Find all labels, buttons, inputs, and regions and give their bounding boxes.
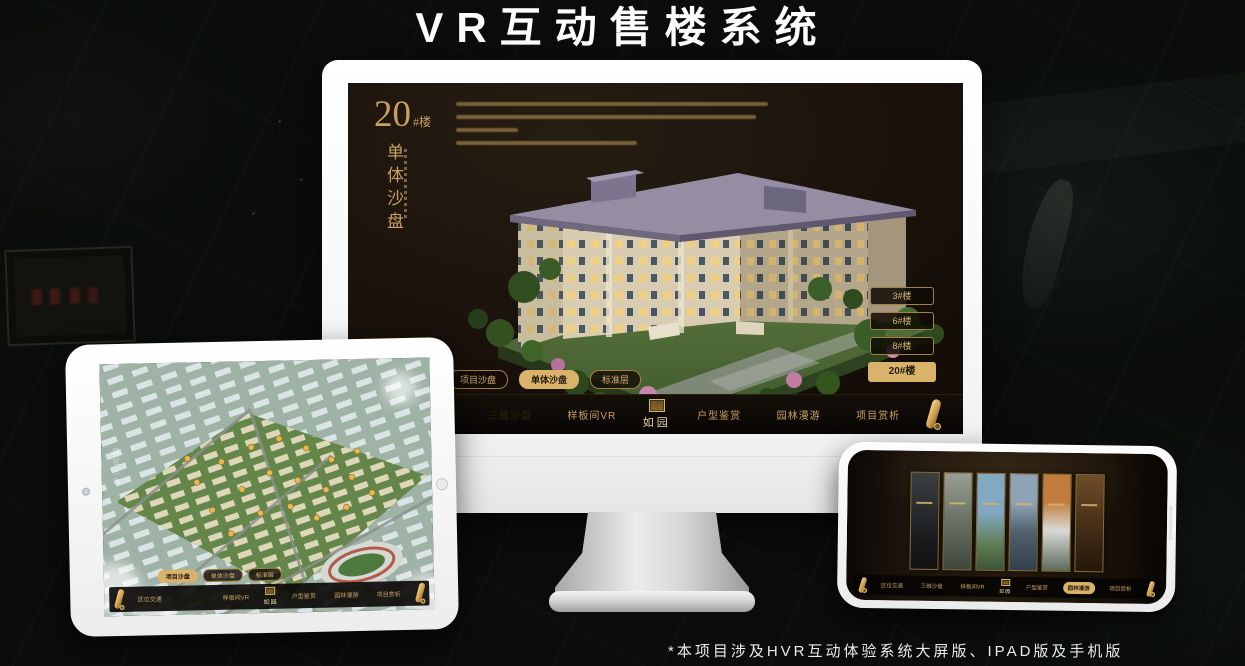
seal-icon [1001,579,1010,586]
seal-icon [265,587,275,595]
tablet-nav-item-showroom-vr[interactable]: 样板间VR [218,589,253,605]
scroll-menu-icon[interactable] [114,588,123,610]
vertical-section-title: 单体沙盘 [381,143,406,235]
gold-speck [300,178,303,181]
tablet-nav-item-garden-roam[interactable]: 园林漫游 [330,587,362,603]
phone-nav-item-location[interactable]: 区位交通 [878,579,906,591]
panorama-card[interactable] [1074,474,1104,572]
vertical-title-english-caption [404,149,407,219]
panorama-card[interactable] [909,472,939,570]
phone-bottom-nav: 区位交通 三维沙盘 样板间VR 如园 户型鉴赏 园林漫游 项目赏析 [854,575,1158,599]
panorama-card[interactable] [975,473,1005,571]
tablet-nav-item-location[interactable]: 区位交通 [134,591,166,607]
floor-button-3[interactable]: 3#楼 [870,287,934,305]
panorama-card[interactable] [1008,473,1038,571]
tablet-nav-item-floorplans[interactable]: 户型鉴赏 [288,588,320,604]
scroll-menu-icon[interactable] [415,582,424,604]
plaque-faint-text [32,287,103,305]
gold-speck [278,120,281,123]
nav-item-floorplans[interactable]: 户型鉴赏 [688,402,750,427]
tablet-home-button[interactable] [436,478,448,490]
background-plaque-frame [4,246,135,346]
scroll-menu-icon[interactable] [858,576,866,593]
tablet-brand-logo: 如园 [263,587,277,606]
tablet-frame: 园区三路 项目沙盘 单体沙盘 标准层 区位交通 三维沙盘 样板间VR 如园 户型… [65,337,459,637]
road-label: 园区三路 [110,448,121,488]
monitor-stand-base [549,591,755,612]
gold-speck [252,212,255,215]
tablet-nav-item-project-gallery[interactable]: 项目赏析 [373,586,405,602]
floor-button-group: 3#楼 6#楼 8#楼 20#楼 [868,287,936,382]
phone-frame: 区位交通 三维沙盘 样板间VR 如园 户型鉴赏 园林漫游 项目赏析 [837,442,1177,613]
phone-nav-item-floorplans[interactable]: 户型鉴赏 [1023,581,1051,593]
tablet-sandbox-subtabs: 项目沙盘 单体沙盘 标准层 [158,568,282,584]
subtab-single-sandbox-active[interactable]: 单体沙盘 [519,370,579,389]
page-title: VR互动售楼系统 [0,0,1245,56]
building-number: 20 [374,94,411,135]
tablet-brand-logo-text: 如园 [263,597,277,606]
nav-item-project-gallery[interactable]: 项目赏析 [847,402,909,427]
nav-item-3d-sandbox-active[interactable]: 三维沙盘 [479,402,541,427]
tablet-nav-item-3d-sandbox-active[interactable]: 三维沙盘 [176,590,208,606]
panorama-card[interactable] [1041,473,1071,571]
seal-icon [649,399,665,412]
panorama-card[interactable] [942,472,972,570]
block-title: 20#楼 [374,96,431,134]
tablet-screen: 园区三路 项目沙盘 单体沙盘 标准层 区位交通 三维沙盘 样板间VR 如园 户型… [99,357,434,616]
scroll-menu-icon[interactable] [927,399,940,431]
phone-nav-item-showroom-vr[interactable]: 样板间VR [957,580,987,592]
phone-side-slot [1169,506,1172,540]
brand-logo-text: 如园 [643,414,671,430]
intro-paragraph-lines [456,102,768,154]
subtab-standard-floor[interactable]: 标准层 [590,370,641,389]
subtab-project-sandbox[interactable]: 项目沙盘 [448,370,508,389]
phone-nav-item-3d-sandbox[interactable]: 三维沙盘 [918,580,946,592]
building-number-suffix: #楼 [413,115,431,129]
panorama-card-strip [909,472,1104,573]
phone-screen[interactable]: 区位交通 三维沙盘 样板间VR 如园 户型鉴赏 园林漫游 项目赏析 [846,450,1168,604]
tablet-subtab-standard-floor[interactable]: 标准层 [248,568,282,582]
floor-button-6[interactable]: 6#楼 [870,312,934,330]
nav-item-garden-roam[interactable]: 园林漫游 [768,402,830,427]
sandbox-subtabs: 项目沙盘 单体沙盘 标准层 [448,370,641,389]
floor-button-8[interactable]: 8#楼 [870,337,934,355]
phone-nav-item-project-gallery[interactable]: 项目赏析 [1106,582,1134,594]
floor-button-20-active[interactable]: 20#楼 [868,362,936,382]
brand-logo: 如园 [643,399,671,430]
footnote-text: *本项目涉及HVR互动体验系统大屏版、IPAD版及手机版 [668,640,1123,661]
phone-nav-item-garden-roam-active[interactable]: 园林漫游 [1063,582,1095,594]
phone-brand-logo-text: 如园 [999,588,1011,595]
tablet-subtab-project-sandbox-active[interactable]: 项目沙盘 [158,569,198,583]
tablet-camera-dot [82,488,90,496]
tablet-subtab-single-sandbox[interactable]: 单体沙盘 [203,568,243,582]
phone-brand-logo: 如园 [999,579,1011,595]
nav-item-showroom-vr[interactable]: 样板间VR [558,402,625,427]
scroll-menu-icon[interactable] [1146,580,1154,597]
